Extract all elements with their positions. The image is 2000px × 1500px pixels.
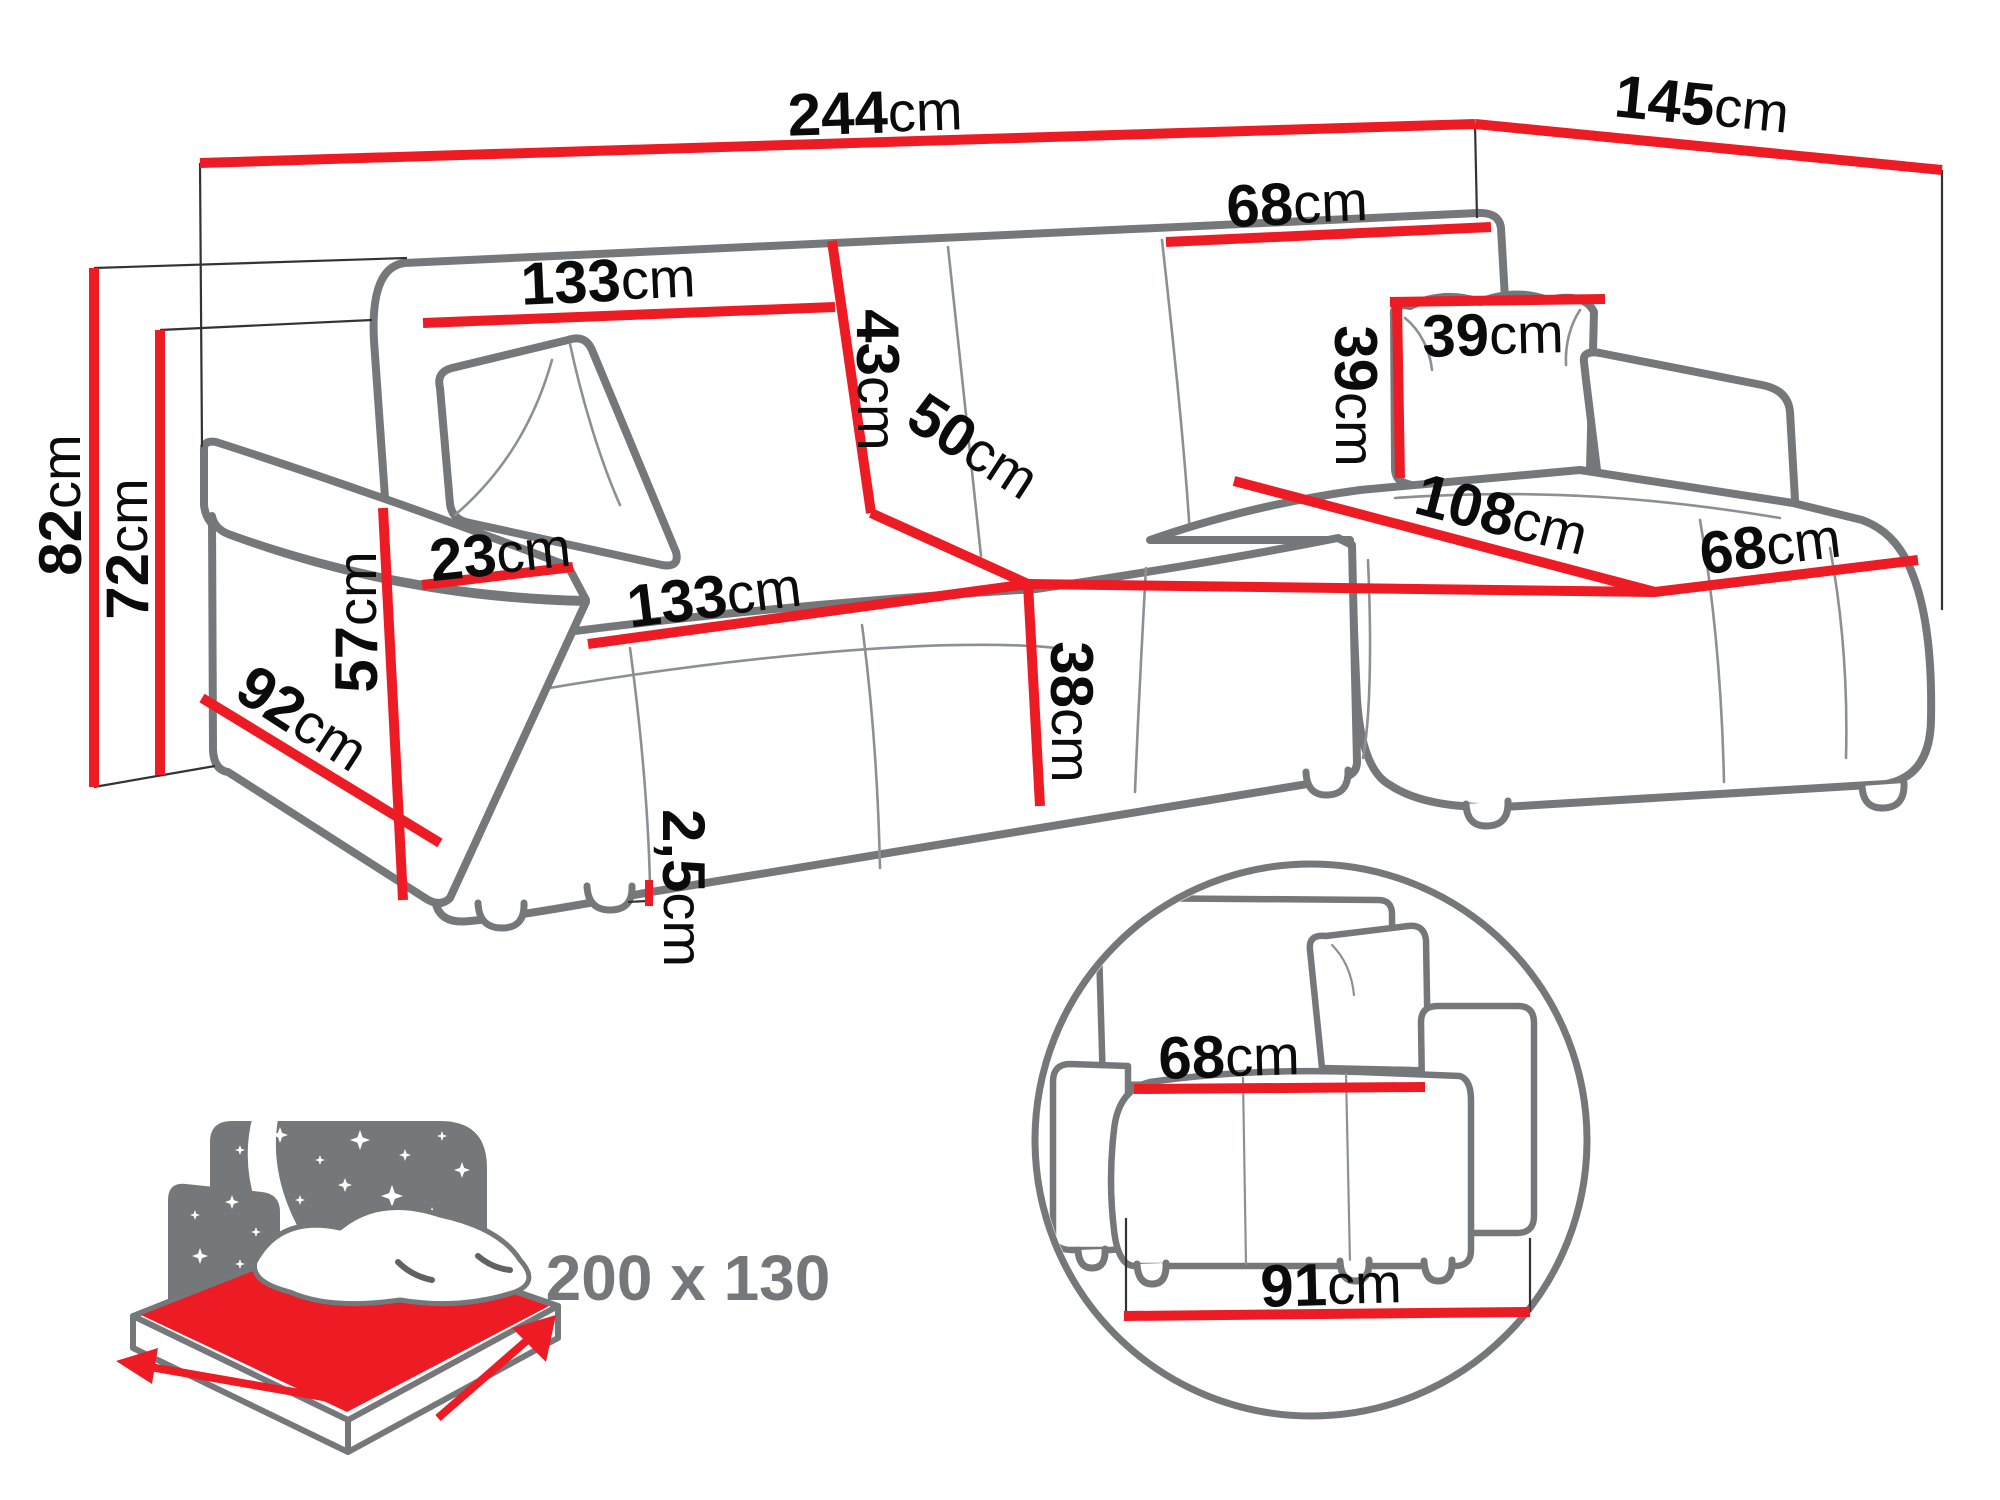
label-pillow-width: 39cm: [1421, 299, 1564, 370]
label-armrest-height: 57cm: [323, 551, 390, 692]
detail-seat: [1111, 1071, 1471, 1266]
dim-line-pillow-height: [1397, 303, 1400, 478]
label-detail-total-depth: 91cm: [1259, 1249, 1402, 1320]
bed-icon: 200 x 130: [116, 1119, 830, 1452]
label-leg-height: 2,5cm: [651, 809, 718, 967]
label-seat-height: 38cm: [1039, 641, 1106, 782]
detail-pillow: [1310, 926, 1428, 1070]
label-pillow-height: 39cm: [1323, 325, 1390, 466]
label-depth-total: 145cm: [1612, 62, 1793, 146]
label-backrest-right-width: 68cm: [1225, 166, 1369, 239]
label-detail-seat-depth: 68cm: [1157, 1021, 1300, 1092]
label-width-total: 244cm: [787, 76, 964, 148]
label-height-backrest: 72cm: [94, 478, 161, 619]
label-height-total: 82cm: [27, 434, 94, 575]
bed-size-label: 200 x 130: [546, 1242, 831, 1314]
diagram-canvas: 244cm 145cm 82cm 72cm 133cm 43cm 68cm 39…: [0, 0, 2000, 1500]
sofa-dimension-diagram: 244cm 145cm 82cm 72cm 133cm 43cm 68cm 39…: [0, 0, 2000, 1500]
side-view-detail-circle: 68cm 91cm: [1035, 864, 1587, 1416]
label-backrest-left-width: 133cm: [519, 243, 697, 318]
